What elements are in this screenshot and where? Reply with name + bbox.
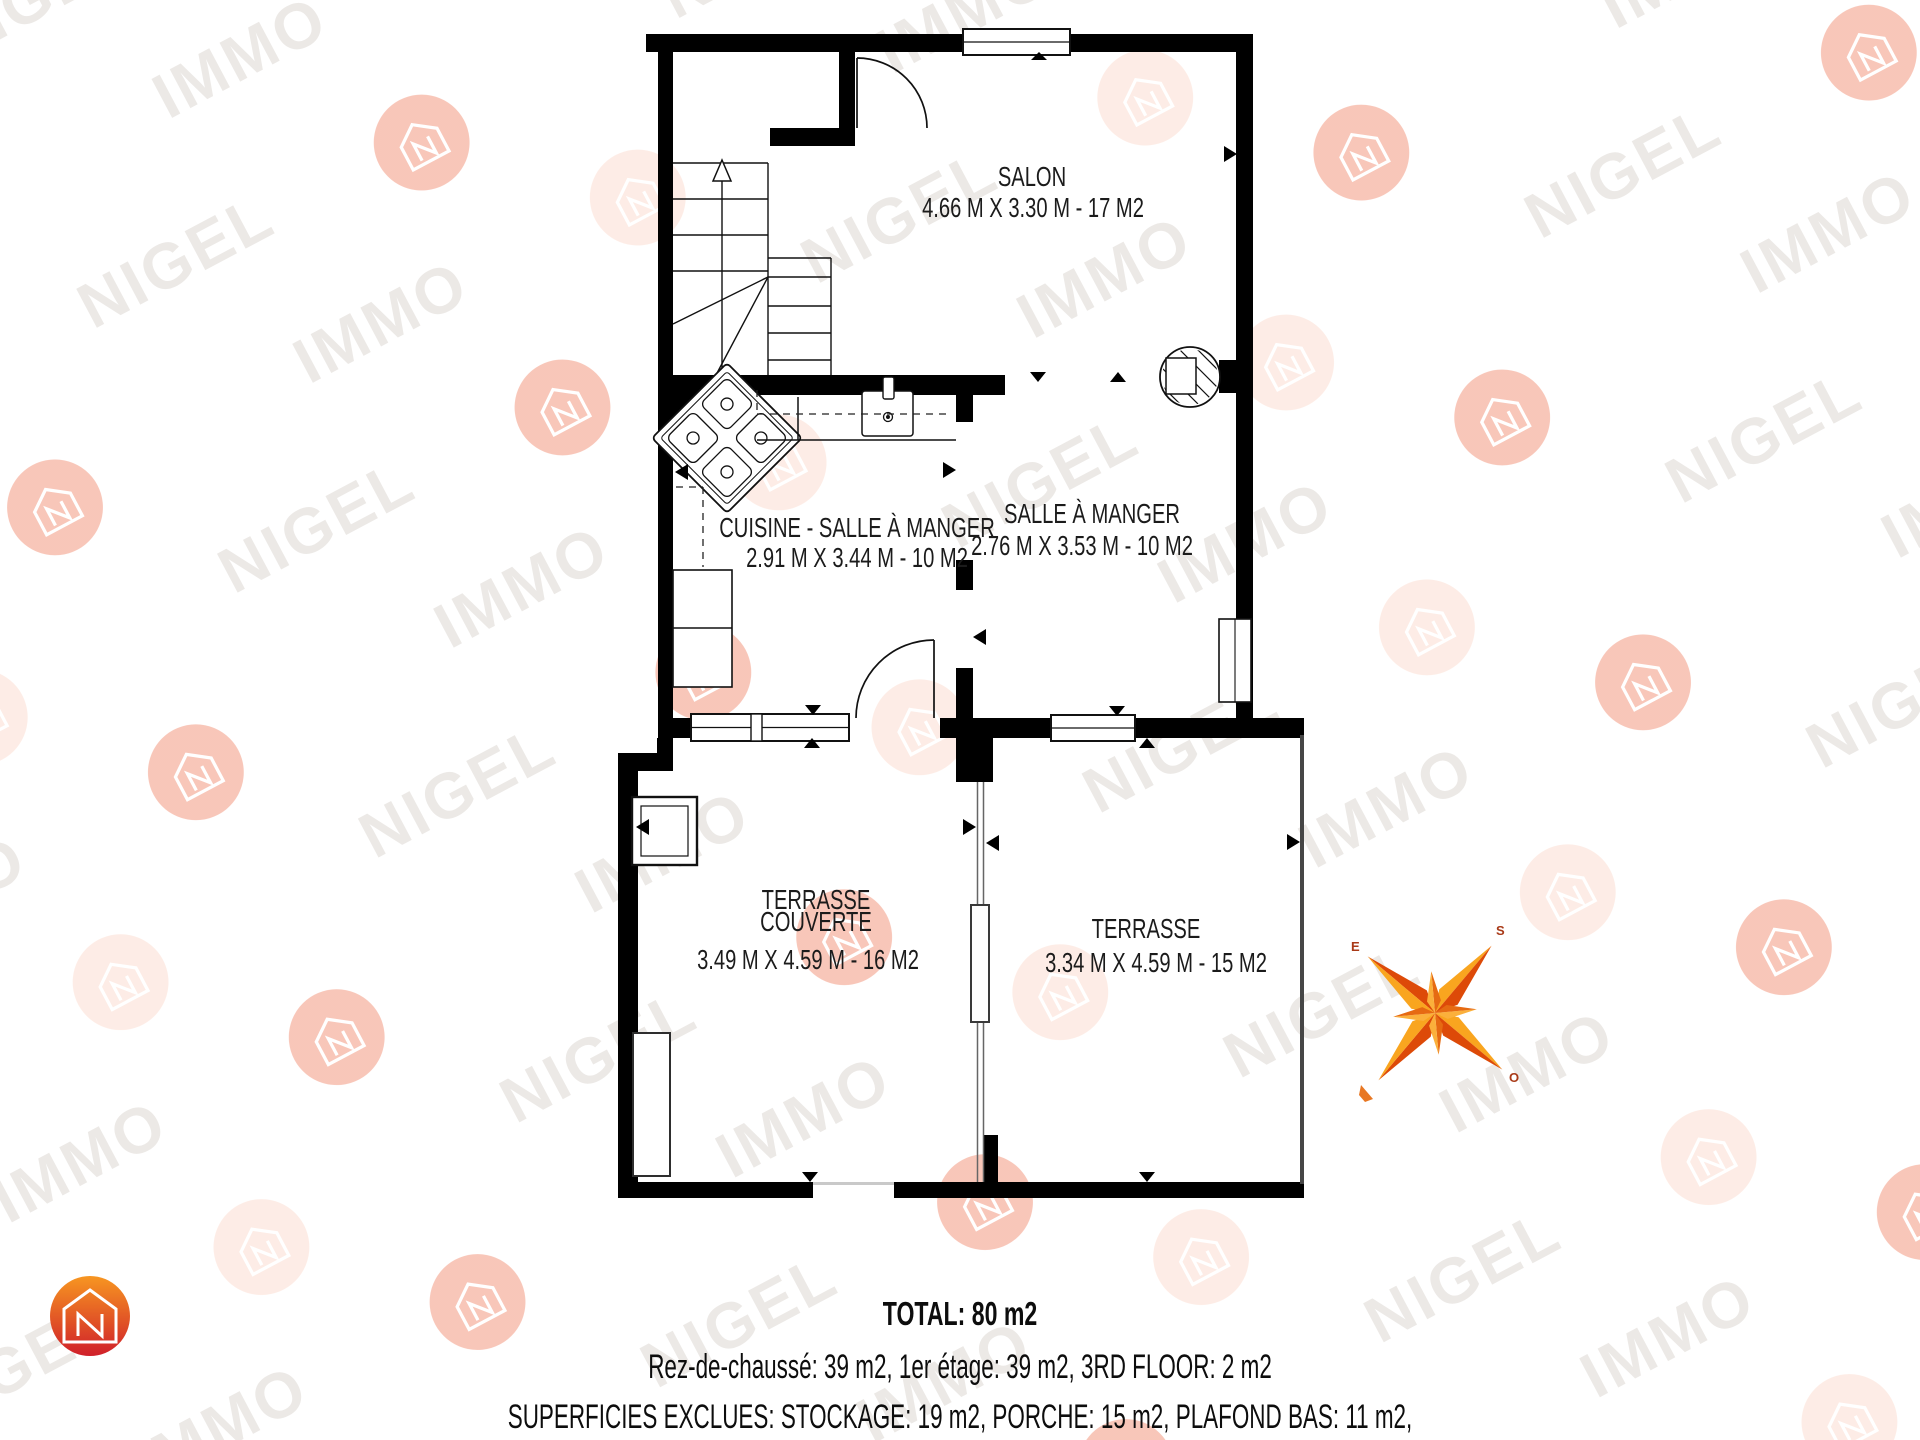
room-label-terrasse: TERRASSE	[1092, 913, 1201, 945]
terrace-bench	[633, 1033, 670, 1176]
summary-excluded-1: SUPERFICIES EXCLUES: STOCKAGE: 19 m2, PO…	[326, 1398, 1593, 1437]
marker-right-icon	[1224, 146, 1237, 162]
wall-bottom-terrace-right	[894, 1182, 1304, 1198]
kitchen-cabinet	[673, 570, 732, 687]
window-salle-a-manger-right	[1219, 619, 1251, 702]
wall-stair-door-stub	[839, 52, 855, 128]
window-cuisine-bottom	[691, 714, 849, 741]
window-terrasse-top	[1051, 715, 1135, 741]
wall-terrace-link	[657, 738, 673, 754]
terrace-threshold	[813, 1182, 894, 1185]
marker-up-icon	[1139, 738, 1155, 748]
wall-terrace-divider-bottom	[984, 1135, 998, 1182]
marker-left-icon	[973, 629, 986, 645]
marker-down-icon	[802, 1172, 818, 1182]
wall-left-upper	[658, 34, 673, 738]
room-dims-salle-a-manger: 2.76 M X 3.53 M - 10 M2	[971, 530, 1193, 562]
brand-logo	[42, 1268, 138, 1364]
compass-south-label: S	[1496, 923, 1505, 938]
room-label-salle-a-manger: SALLE À MANGER	[1004, 498, 1180, 530]
room-label-terrasse-couverte-2: COUVERTE	[760, 906, 872, 938]
wall-terrace-divider-top	[956, 738, 993, 782]
terrace-open-edge	[1300, 735, 1304, 1184]
floor-plan-page: NIGELNIGELNIGELNIGELNIGELNIGELIMMOIMMOIM…	[0, 0, 1920, 1440]
room-dims-cuisine: 2.91 M X 3.44 M - 10 M2	[746, 542, 968, 574]
summary-floors: Rez-de-chaussé: 39 m2, 1er étage: 39 m2,…	[326, 1348, 1593, 1387]
summary-total: TOTAL: 80 m2	[288, 1295, 1632, 1333]
terrace-divider-door-leaf	[971, 905, 989, 1022]
terrace-objects	[632, 797, 697, 1176]
room-label-cuisine: CUISINE - SALLE À MANGER	[719, 512, 995, 544]
room-dims-terrasse: 3.34 M X 4.59 M - 15 M2	[1045, 947, 1267, 979]
window-salon-top	[963, 29, 1070, 55]
marker-right-icon	[1287, 834, 1300, 850]
compass-points	[1368, 946, 1503, 1081]
door-stairs-salon	[857, 58, 927, 128]
wall-bottom-terrace-left	[618, 1182, 813, 1198]
room-dims-salon: 4.66 M X 3.30 M - 17 M2	[922, 192, 1144, 224]
door-cuisine-terrasse	[856, 640, 934, 718]
wall-right-upper	[1236, 34, 1253, 720]
wall-stair-landing	[770, 128, 855, 146]
staircase	[673, 160, 831, 375]
marker-up-icon	[1110, 372, 1126, 382]
terrace-wall-box	[632, 797, 697, 865]
marker-down-icon	[1030, 372, 1046, 382]
marker-left-icon	[986, 835, 999, 851]
marker-right-icon	[963, 819, 976, 835]
wall-divider-a	[956, 395, 973, 422]
marker-down-icon	[1139, 1172, 1155, 1182]
compass-rose: E S O	[1335, 905, 1535, 1135]
room-label-salon: SALON	[998, 161, 1066, 193]
compass-west-label: O	[1509, 1070, 1519, 1085]
wall-top	[646, 34, 1253, 52]
north-arrow-icon	[1359, 1085, 1373, 1102]
room-dims-terrasse-couverte: 3.49 M X 4.59 M - 16 M2	[697, 944, 919, 976]
wall-chimney-stub	[1219, 360, 1236, 393]
compass-east-label: E	[1351, 939, 1360, 954]
marker-right-icon	[943, 462, 956, 478]
